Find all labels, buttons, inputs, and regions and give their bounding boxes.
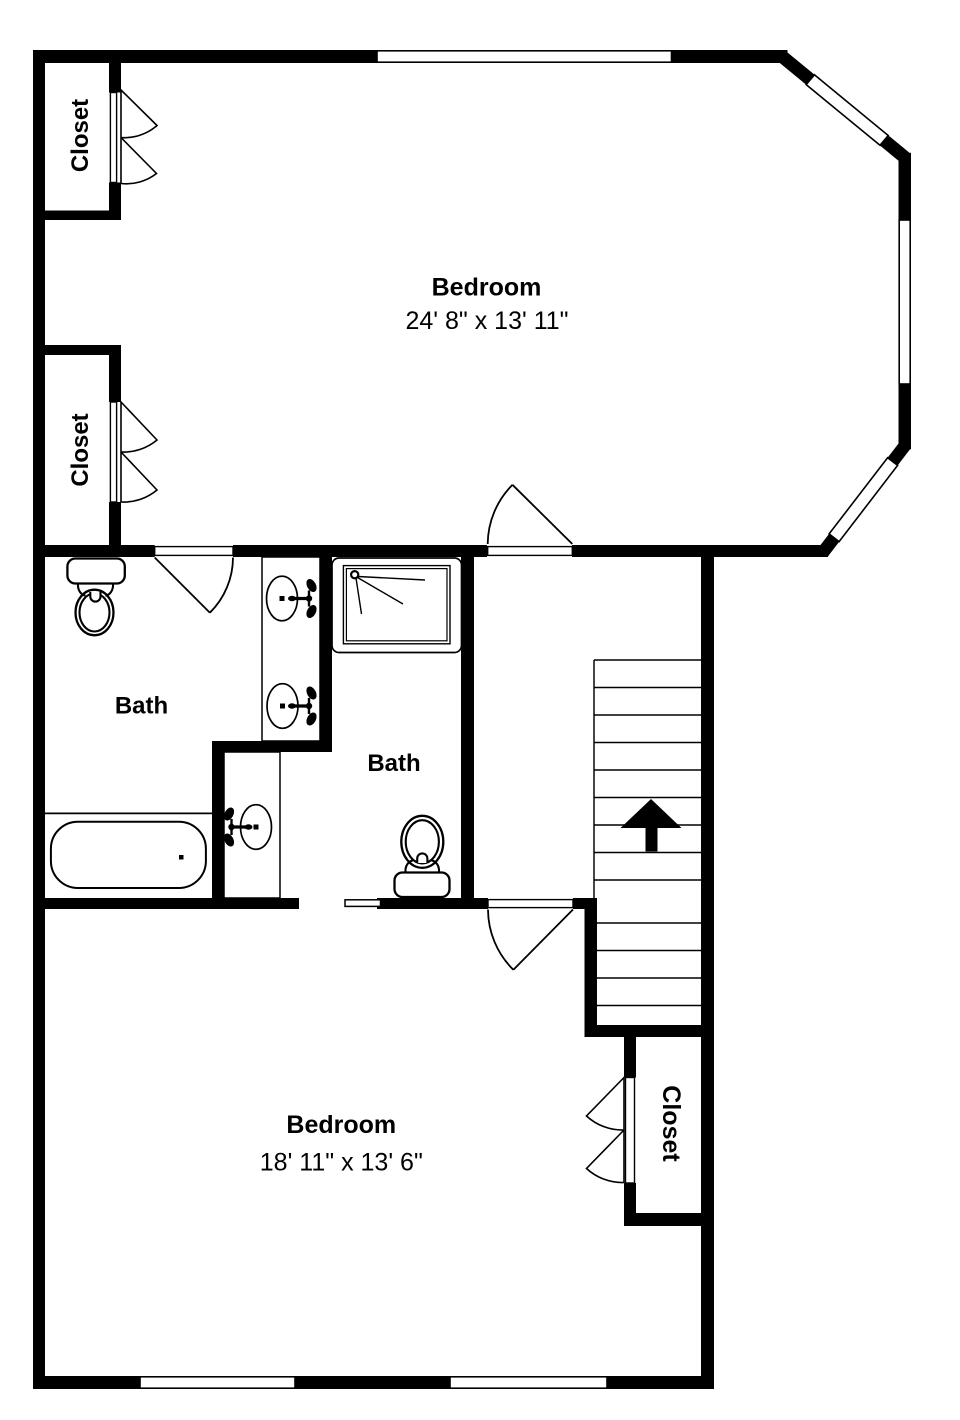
svg-text:24' 8" x 13' 11": 24' 8" x 13' 11" — [405, 307, 568, 335]
svg-text:Bath: Bath — [115, 693, 168, 720]
svg-text:Bedroom: Bedroom — [432, 274, 542, 302]
svg-text:Closet: Closet — [657, 1085, 685, 1162]
svg-text:Closet: Closet — [67, 413, 94, 486]
svg-text:18' 11" x 13' 6": 18' 11" x 13' 6" — [260, 1149, 423, 1177]
svg-text:Bath: Bath — [367, 750, 420, 777]
svg-text:Bedroom: Bedroom — [286, 1111, 396, 1139]
svg-text:Closet: Closet — [67, 99, 94, 172]
